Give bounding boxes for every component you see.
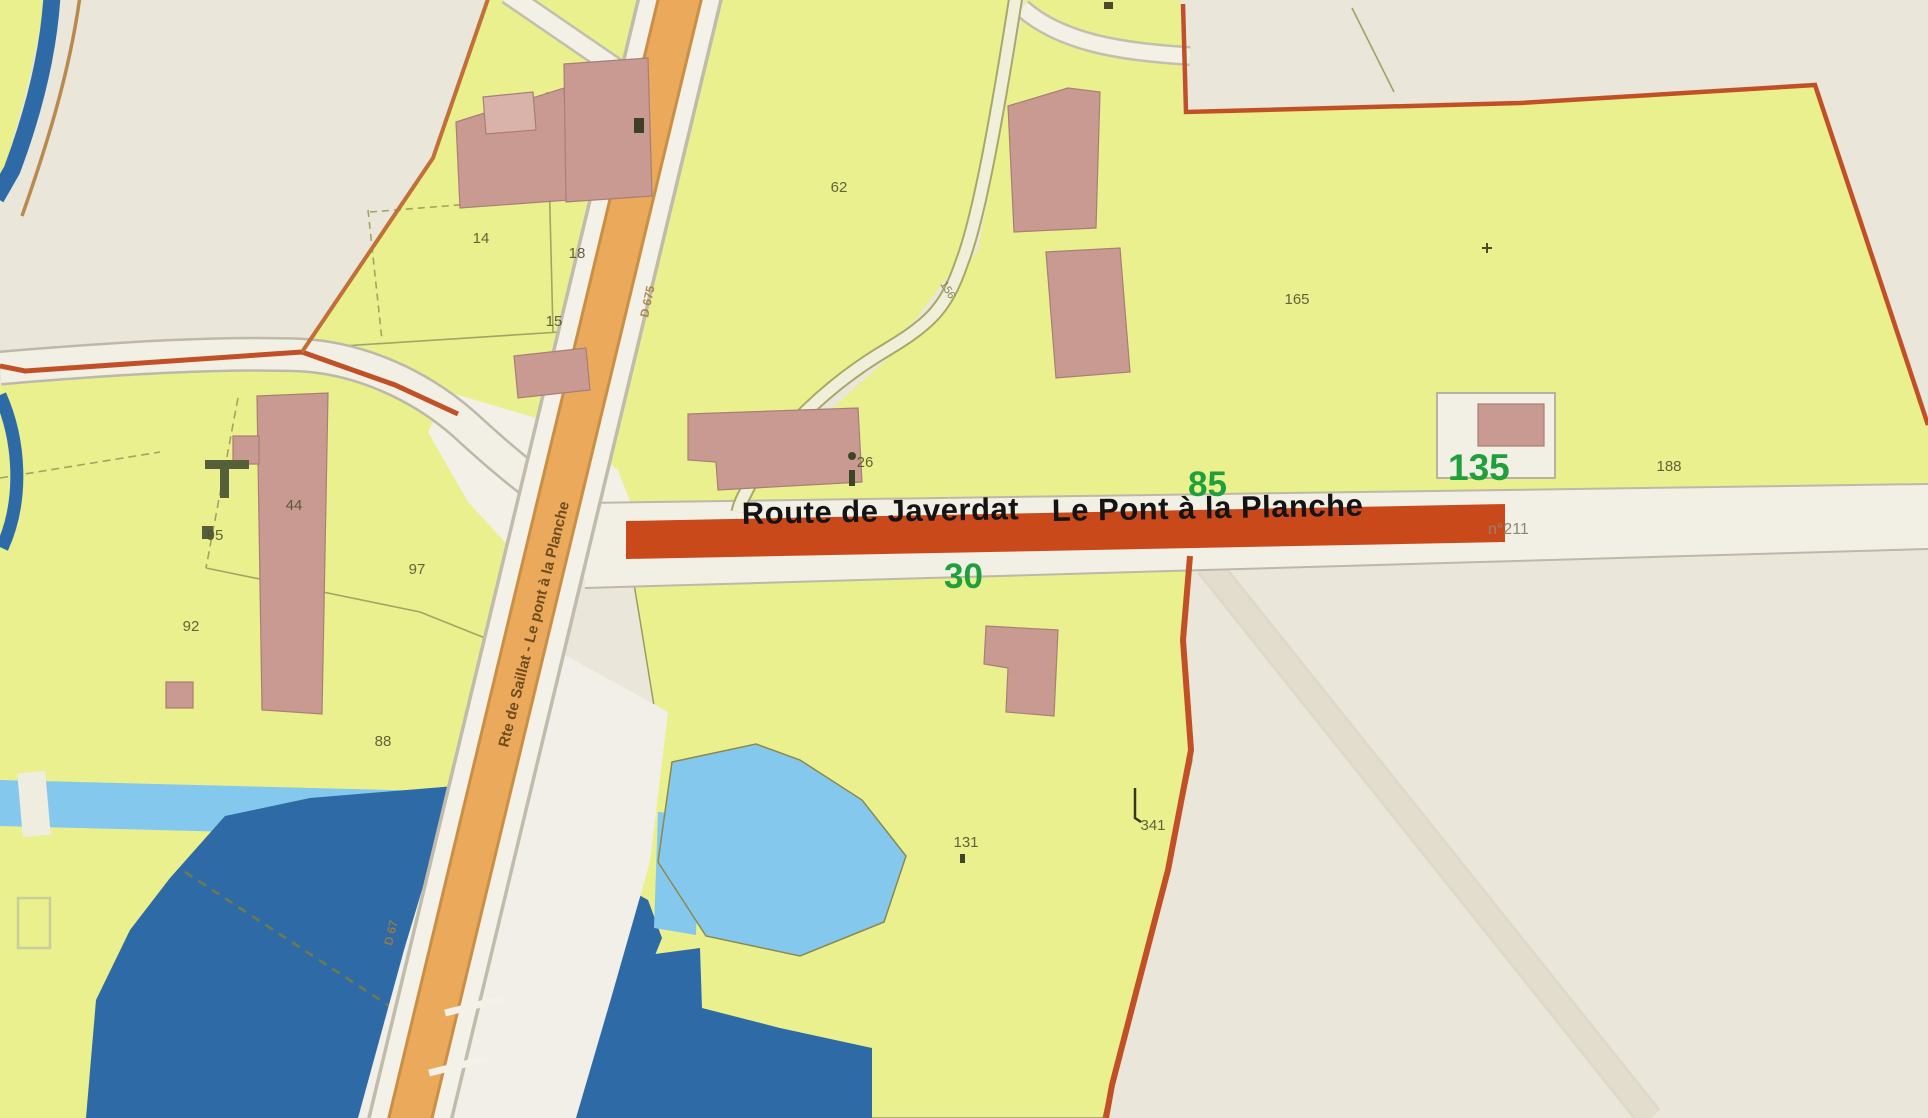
- parcel-number-15: 15: [546, 313, 563, 330]
- parcel-number-165: 165: [1284, 291, 1309, 308]
- building-strip-annex: [233, 436, 259, 464]
- address-number-135: 135: [1448, 447, 1510, 488]
- parcel-number-14: 14: [473, 230, 490, 247]
- parcel-number-44: 44: [286, 497, 303, 514]
- building-long-strip: [257, 393, 328, 714]
- building-topleft-annex: [483, 92, 536, 134]
- poi-marker: [634, 118, 644, 133]
- address-number-85: 85: [1188, 465, 1227, 504]
- parcel-number-92: 92: [183, 618, 200, 635]
- junction-symbol-post: [849, 470, 855, 486]
- parcel-number-88: 88: [375, 733, 392, 750]
- stream-bridge-gap: [17, 771, 50, 837]
- tree-mark-stem: [220, 468, 229, 498]
- parcel-number-62: 62: [831, 179, 848, 196]
- building-topright-a: [1008, 88, 1100, 232]
- building-topright-b: [1046, 248, 1130, 378]
- cadastral-map[interactable]: Route de Javerdat Le Pont à la Planche 3…: [0, 0, 1928, 1118]
- building-small-left: [166, 682, 193, 708]
- tree-mark-bar: [205, 460, 249, 469]
- top-edge-mark: [1104, 2, 1113, 9]
- parcel-number-131: 131: [953, 834, 978, 851]
- building-farmyard: [1478, 404, 1544, 446]
- parcel-number-188: 188: [1656, 458, 1681, 475]
- parcel-number-18: 18: [569, 245, 586, 262]
- cadastral-map-viewport[interactable]: Route de Javerdat Le Pont à la Planche 3…: [0, 0, 1928, 1118]
- address-number-30: 30: [944, 557, 983, 596]
- junction-symbol-dot: [848, 452, 856, 460]
- road-name-route-de-javerdat: Route de Javerdat: [742, 491, 1020, 531]
- road-ref-n211: n°211: [1488, 521, 1529, 538]
- parcel-number-95: 95: [207, 527, 224, 544]
- building-small-15: [514, 348, 590, 398]
- parcel-number-341: 341: [1140, 817, 1165, 834]
- tick-mark-131: [960, 854, 965, 863]
- parcel-number-26: 26: [857, 454, 874, 471]
- parcel-number-97: 97: [409, 561, 426, 578]
